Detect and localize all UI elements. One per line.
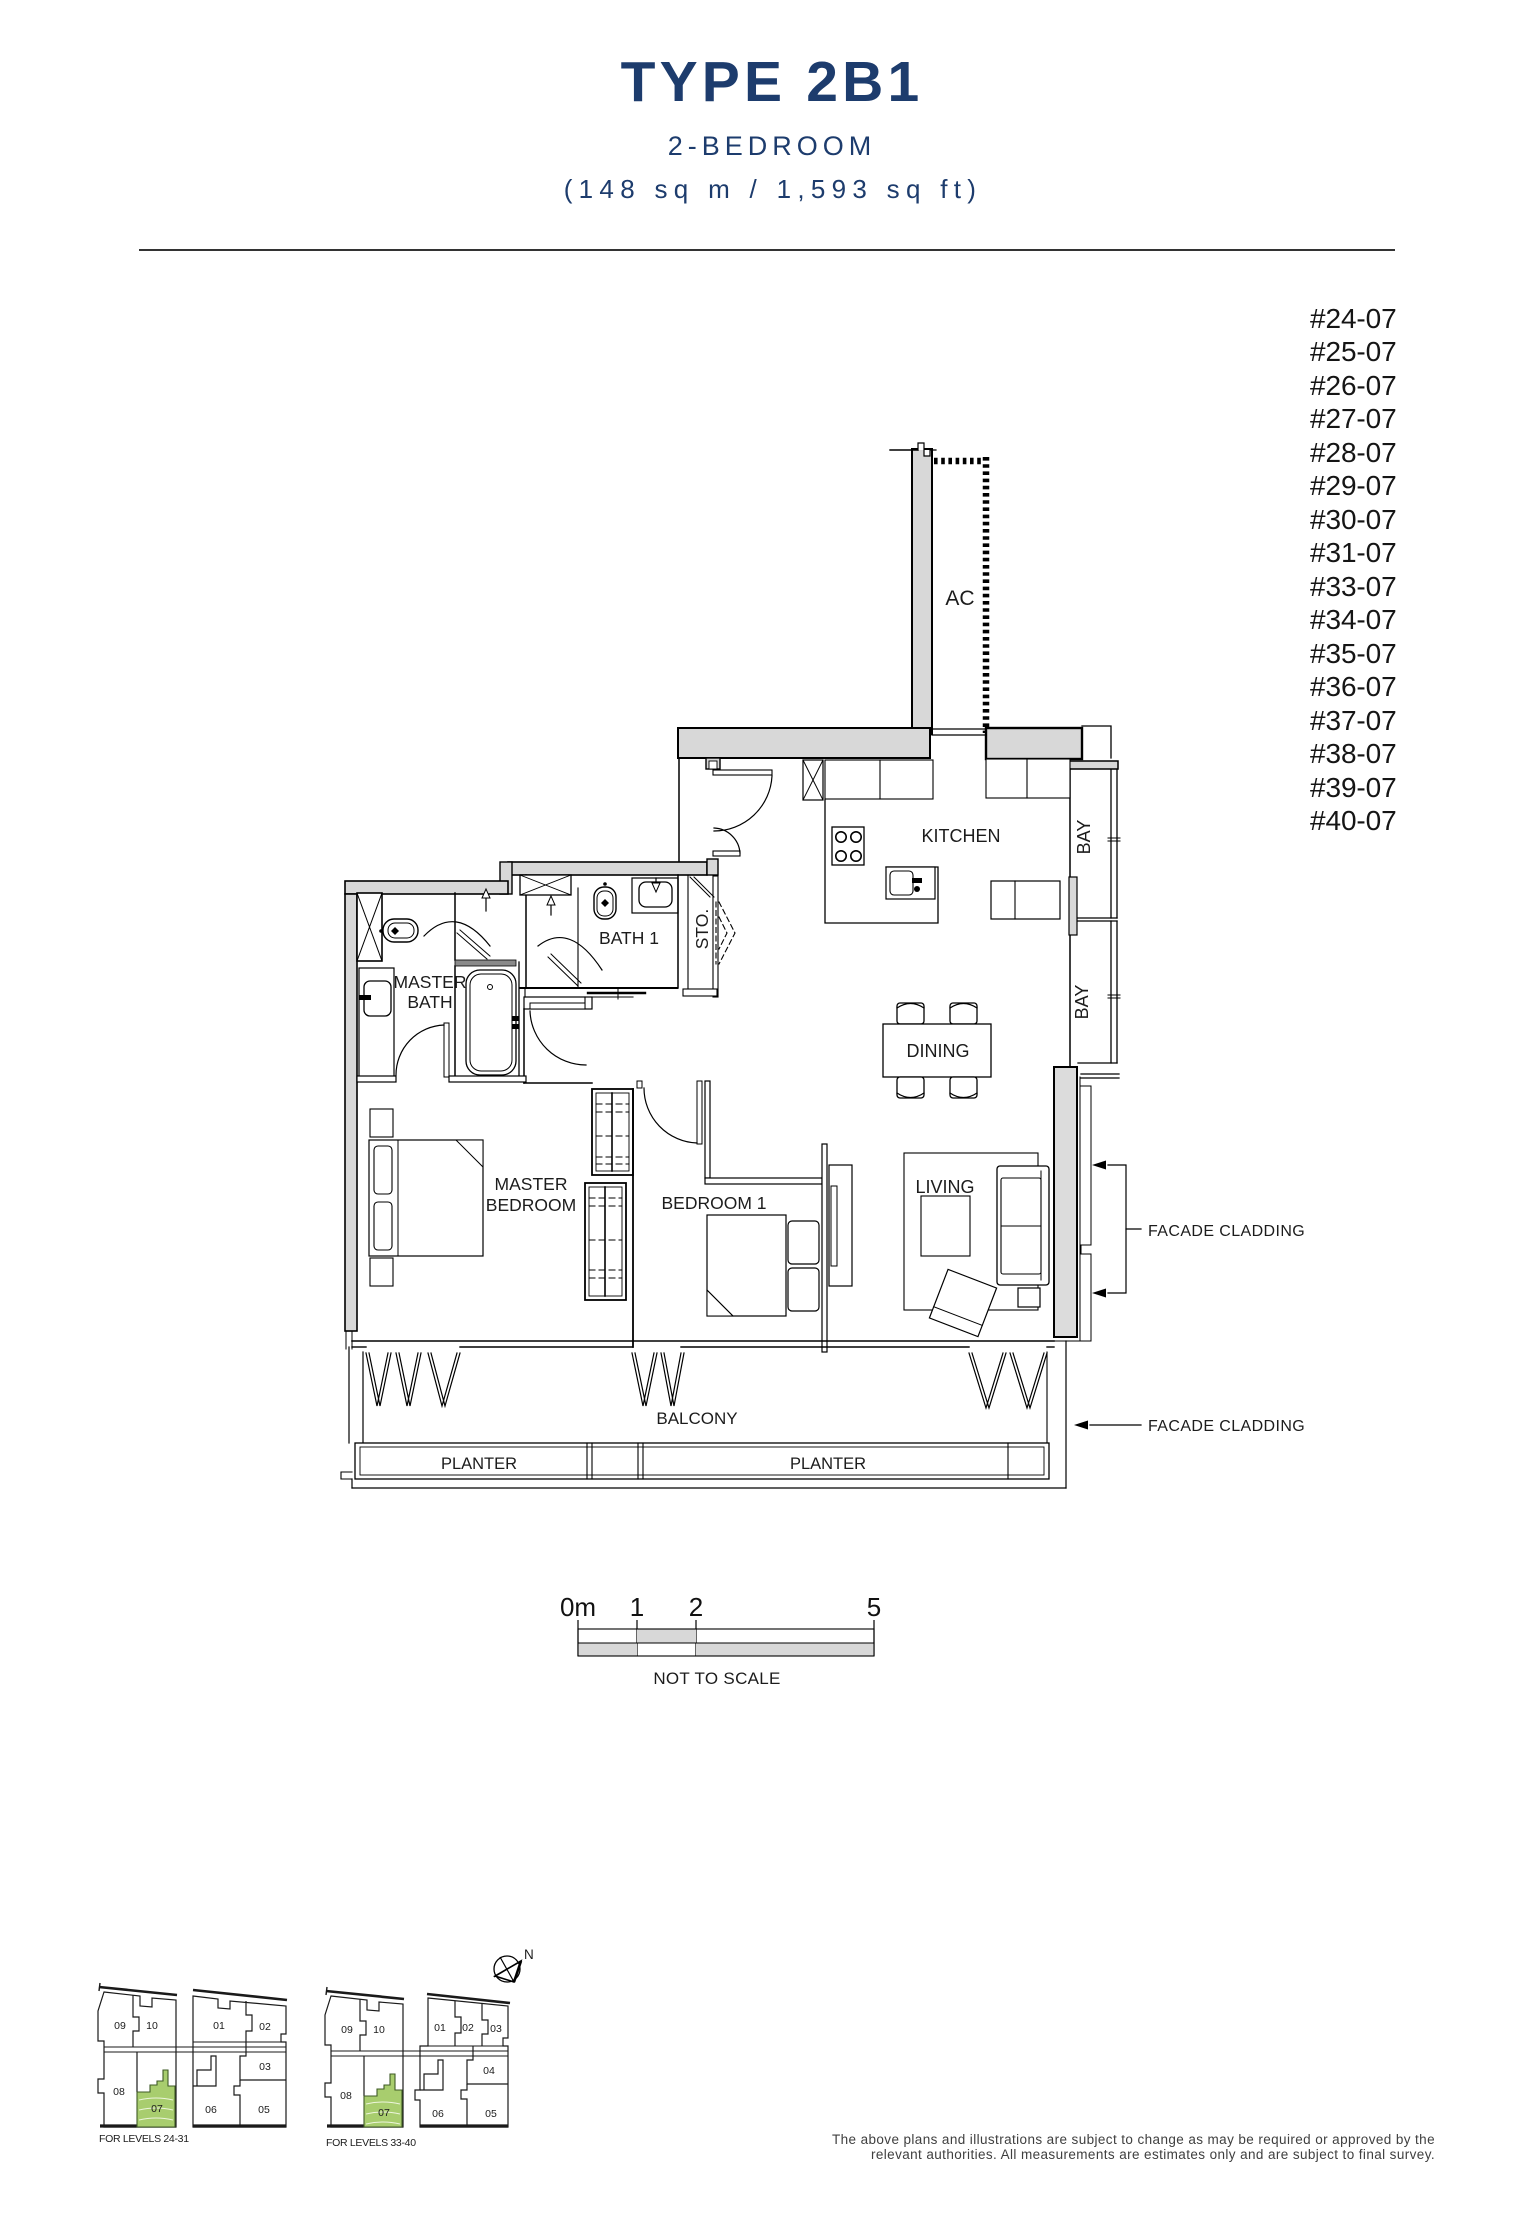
svg-text:BAY: BAY [1074, 820, 1094, 855]
svg-text:2: 2 [689, 1592, 703, 1622]
svg-text:0m: 0m [560, 1592, 596, 1622]
svg-text:06: 06 [432, 2108, 444, 2120]
svg-text:#29-07: #29-07 [1310, 470, 1397, 501]
svg-text:#39-07: #39-07 [1310, 772, 1397, 803]
svg-text:07: 07 [151, 2103, 163, 2115]
svg-text:#34-07: #34-07 [1310, 604, 1397, 635]
svg-text:08: 08 [113, 2086, 125, 2098]
svg-text:PLANTER: PLANTER [441, 1455, 517, 1473]
svg-text:FOR LEVELS 33-40: FOR LEVELS 33-40 [326, 2137, 416, 2149]
svg-text:#27-07: #27-07 [1310, 403, 1397, 434]
svg-text:10: 10 [373, 2024, 385, 2036]
svg-text:01: 01 [434, 2022, 446, 2034]
svg-text:08: 08 [340, 2090, 352, 2102]
svg-text:#37-07: #37-07 [1310, 705, 1397, 736]
svg-text:FACADE CLADDING: FACADE CLADDING [1148, 1223, 1305, 1240]
svg-text:5: 5 [867, 1592, 881, 1622]
svg-text:#35-07: #35-07 [1310, 638, 1397, 669]
svg-text:05: 05 [258, 2104, 270, 2116]
svg-text:#36-07: #36-07 [1310, 671, 1397, 702]
svg-text:MASTER: MASTER [495, 1174, 568, 1194]
svg-text:PLANTER: PLANTER [790, 1455, 866, 1473]
svg-text:AC: AC [945, 587, 974, 610]
svg-text:#31-07: #31-07 [1310, 537, 1397, 568]
svg-text:#24-07: #24-07 [1310, 303, 1397, 334]
svg-text:BALCONY: BALCONY [656, 1409, 737, 1428]
svg-text:04: 04 [483, 2065, 495, 2077]
svg-text:06: 06 [205, 2104, 217, 2116]
svg-text:01: 01 [213, 2020, 225, 2032]
svg-text:#33-07: #33-07 [1310, 571, 1397, 602]
svg-text:07: 07 [378, 2107, 390, 2119]
svg-text:BATH 1: BATH 1 [599, 928, 659, 948]
svg-text:09: 09 [341, 2024, 353, 2036]
svg-text:N: N [524, 1947, 534, 1962]
svg-text:#25-07: #25-07 [1310, 336, 1397, 367]
svg-text:1: 1 [630, 1592, 644, 1622]
svg-text:#28-07: #28-07 [1310, 437, 1397, 468]
svg-text:#40-07: #40-07 [1310, 805, 1397, 836]
svg-text:BEDROOM: BEDROOM [486, 1195, 576, 1215]
svg-text:#26-07: #26-07 [1310, 370, 1397, 401]
svg-text:(148 sq m / 1,593 sq ft): (148 sq m / 1,593 sq ft) [564, 174, 983, 204]
svg-text:MASTER: MASTER [394, 972, 467, 992]
svg-text:STO.: STO. [692, 909, 712, 950]
svg-text:BEDROOM 1: BEDROOM 1 [661, 1193, 766, 1213]
svg-text:03: 03 [490, 2023, 502, 2035]
svg-text:05: 05 [485, 2108, 497, 2120]
svg-text:BATH: BATH [407, 992, 452, 1012]
svg-text:BAY: BAY [1072, 985, 1092, 1020]
svg-text:2-BEDROOM: 2-BEDROOM [668, 131, 877, 161]
svg-text:02: 02 [462, 2022, 474, 2034]
svg-text:NOT TO SCALE: NOT TO SCALE [653, 1669, 780, 1688]
svg-text:TYPE 2B1: TYPE 2B1 [621, 50, 924, 114]
svg-text:KITCHEN: KITCHEN [921, 826, 1000, 846]
svg-text:FOR LEVELS 24-31: FOR LEVELS 24-31 [99, 2133, 189, 2145]
svg-text:LIVING: LIVING [915, 1177, 974, 1197]
svg-text:10: 10 [146, 2020, 158, 2032]
svg-text:03: 03 [259, 2061, 271, 2073]
svg-text:The above plans and illustrati: The above plans and illustrations are su… [832, 2132, 1435, 2147]
svg-text:relevant authorities. All meas: relevant authorities. All measurements a… [871, 2147, 1435, 2162]
svg-text:09: 09 [114, 2020, 126, 2032]
svg-text:#38-07: #38-07 [1310, 738, 1397, 769]
svg-text:FACADE CLADDING: FACADE CLADDING [1148, 1418, 1305, 1435]
svg-text:DINING: DINING [907, 1041, 970, 1061]
svg-text:02: 02 [259, 2021, 271, 2033]
svg-text:#30-07: #30-07 [1310, 504, 1397, 535]
